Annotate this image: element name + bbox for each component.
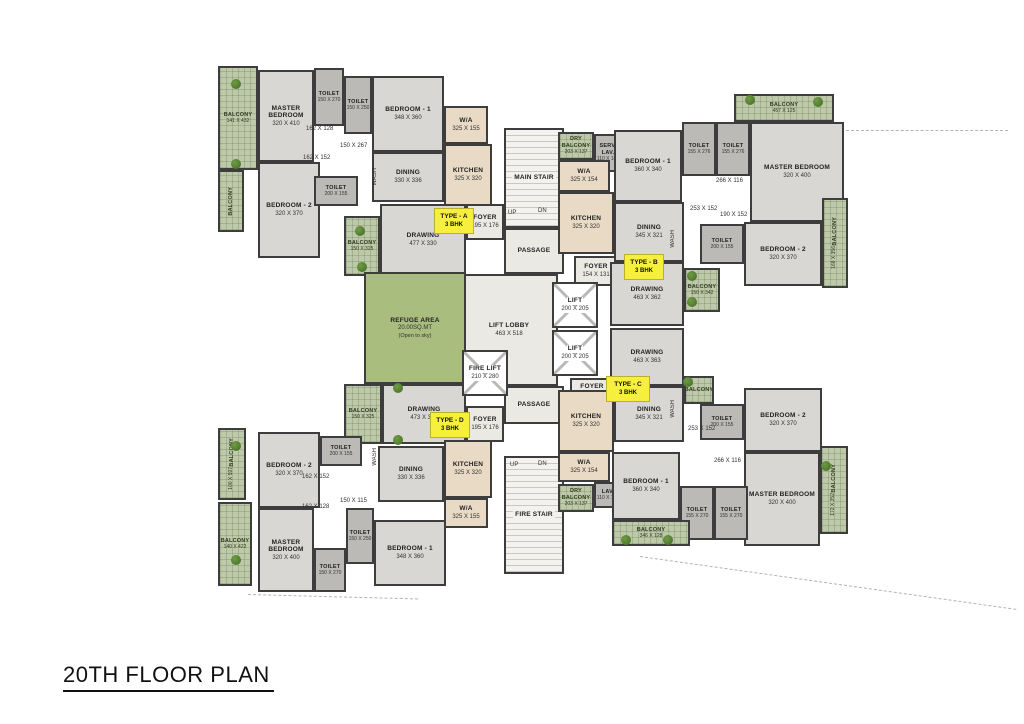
room-dimension-label: 320 X 370	[275, 471, 302, 478]
room-name-label: TOILET	[350, 530, 371, 536]
room-name-label: DRAWING	[631, 349, 664, 356]
room-name-label: BEDROOM - 1	[623, 478, 669, 485]
tree-icon	[745, 95, 755, 105]
dashed-line	[248, 594, 418, 599]
room-b-bedroom-1: BEDROOM - 1360 X 340	[614, 130, 682, 202]
room-dimension-label: 320 X 410	[272, 121, 299, 128]
dimension-label: 162 X 128	[306, 126, 333, 132]
room-dimension-label: 172 X 352	[831, 493, 837, 516]
room-name-label: TOILET	[320, 564, 341, 570]
room-name-label: FOYER	[473, 214, 496, 221]
room-name-label: DRAWING	[631, 286, 664, 293]
room-name-label: PASSAGE	[518, 247, 551, 254]
room-core-passage-bottom: PASSAGE	[504, 386, 564, 424]
room-d-balcony-bottom: BALCONY140 X 422	[218, 502, 252, 586]
dashed-line	[846, 130, 1008, 131]
room-c-bedroom-1: BEDROOM - 1360 X 340	[612, 452, 680, 520]
room-dimension-label: 477 X 330	[409, 241, 436, 248]
plan-title: 20TH FLOOR PLAN	[63, 662, 274, 692]
dimension-label: 190 X 152	[720, 212, 747, 218]
chip-type-a: TYPE - A3 BHK	[434, 208, 474, 234]
room-b-balcony-right: BALCONY168 X 356	[822, 198, 848, 288]
room-name-label: BEDROOM - 2	[266, 462, 312, 469]
dimension-label: WASH	[670, 400, 676, 418]
room-dimension-label: 325 X 154	[570, 468, 597, 475]
dimension-label: 162 X 152	[302, 474, 329, 480]
room-name-label: DINING	[399, 466, 423, 473]
room-dimension-label: 320 X 370	[275, 211, 302, 218]
room-a-kitchen: KITCHEN325 X 320	[444, 144, 492, 206]
room-dimension-label: 463 X 362	[633, 295, 660, 302]
floor-plan: 20TH FLOOR PLAN BALCONY141 X 432BALCONYM…	[0, 0, 1024, 724]
room-name-label: TOILET	[687, 507, 708, 513]
unit-type-label: TYPE - D	[436, 418, 463, 425]
dimension-label: WASH	[372, 448, 378, 466]
room-name-label: FIRE LIFT	[468, 365, 502, 372]
room-name-label: DINING	[637, 224, 661, 231]
room-name-label: TOILET	[326, 185, 347, 191]
tree-icon	[355, 226, 365, 236]
room-d-dining: DINING330 X 336	[378, 446, 444, 502]
room-dimension-label: 330 X 336	[397, 475, 424, 482]
room-d-kitchen: KITCHEN325 X 320	[444, 440, 492, 498]
room-core-fire-stair: FIRE STAIR	[504, 456, 564, 574]
room-d-master-bedroom: MASTER BEDROOM320 X 400	[258, 508, 314, 592]
unit-type-label: TYPE - A	[440, 214, 467, 221]
room-name-label: BEDROOM - 1	[625, 158, 671, 165]
unit-bhk-label: 3 BHK	[445, 222, 463, 228]
room-name-label: BALCONY	[224, 112, 253, 118]
room-name-label: DRY BALCONY	[560, 136, 592, 149]
dimension-label: UP	[508, 210, 516, 216]
room-dimension-label: 155 X 270	[686, 514, 709, 520]
room-name-label: MASTER BEDROOM	[749, 491, 815, 498]
room-name-label: MAIN STAIR	[512, 173, 555, 182]
room-name-label: BALCONY	[688, 284, 717, 290]
unit-bhk-label: 3 BHK	[619, 390, 637, 396]
room-a-bedroom-1: BEDROOM - 1348 X 360	[372, 76, 444, 152]
room-name-label: BALCONY	[685, 387, 714, 393]
room-core-lift-2: LIFT200 X 205	[552, 330, 598, 376]
room-dimension-label: 325 X 320	[572, 422, 599, 429]
room-a-balcony-left: BALCONY	[218, 170, 244, 232]
room-name-label: DRY BALCONY	[560, 488, 592, 501]
room-core-fire-lift: FIRE LIFT210 X 280	[462, 350, 508, 396]
room-dimension-label: 325 X 320	[454, 470, 481, 477]
room-name-label: W/A	[459, 117, 472, 124]
room-dimension-label: 457 X 125	[773, 109, 796, 115]
room-d-toilet-1: TOILET200 X 155	[320, 436, 362, 466]
room-c-toilet-3: TOILET155 X 270	[714, 486, 748, 540]
room-name-label: REFUGE AREA	[390, 317, 439, 324]
room-dimension-label: 360 X 340	[634, 167, 661, 174]
tree-icon	[621, 535, 631, 545]
room-name-label: KITCHEN	[571, 215, 601, 222]
dimension-label: 266 X 116	[714, 458, 741, 464]
room-name-label: BALCONY	[221, 538, 250, 544]
room-a-toilet-3: TOILET200 X 155	[314, 176, 358, 206]
room-name-label: BALCONY	[831, 464, 837, 493]
room-core-lift-1: LIFT200 X 205	[552, 282, 598, 328]
room-note-label: (Open to sky)	[398, 333, 431, 339]
room-name-label: MASTER BEDROOM	[260, 105, 312, 120]
room-name-label: W/A	[459, 505, 472, 512]
room-d-bedroom-1: BEDROOM - 1348 X 360	[374, 520, 446, 586]
room-name-label: BEDROOM - 1	[387, 545, 433, 552]
room-name-label: BEDROOM - 2	[760, 412, 806, 419]
room-dimension-label: 20.00SQ.MT	[398, 325, 432, 332]
room-c-wa: W/A325 X 154	[558, 452, 610, 482]
tree-icon	[231, 441, 241, 451]
dimension-label: DN	[538, 461, 547, 467]
room-c-master-bedroom: MASTER BEDROOM320 X 400	[744, 452, 820, 546]
room-dimension-label: 200 X 155	[330, 452, 353, 458]
room-b-bedroom-2: BEDROOM - 2320 X 370	[744, 222, 822, 286]
room-name-label: KITCHEN	[453, 167, 483, 174]
room-name-label: TOILET	[712, 238, 733, 244]
room-dimension-label: 150 X 250	[349, 537, 372, 543]
room-name-label: MASTER BEDROOM	[764, 164, 830, 171]
room-name-label: PASSAGE	[518, 401, 551, 408]
room-dimension-label: 200 X 205	[560, 354, 589, 361]
room-dimension-label: 346 X 128	[640, 534, 663, 540]
room-name-label: BEDROOM - 2	[266, 202, 312, 209]
room-name-label: MASTER BEDROOM	[260, 539, 312, 554]
tree-icon	[393, 383, 403, 393]
room-dimension-label: 330 X 336	[394, 178, 421, 185]
room-name-label: TOILET	[348, 99, 369, 105]
dimension-label: WASH	[372, 168, 378, 186]
room-dimension-label: 325 X 320	[454, 176, 481, 183]
room-refuge-area: REFUGE AREA20.00SQ.MT(Open to sky)	[364, 272, 466, 384]
room-dimension-label: 348 X 360	[394, 115, 421, 122]
dimension-label: UP	[510, 462, 518, 468]
room-name-label: TOILET	[319, 91, 340, 97]
unit-bhk-label: 3 BHK	[441, 426, 459, 432]
room-dimension-label: 348 X 360	[396, 554, 423, 561]
room-b-dry-balcony: DRY BALCONY203 X 137	[558, 132, 594, 160]
room-name-label: TOILET	[331, 445, 352, 451]
tree-icon	[687, 297, 697, 307]
room-b-toilet-1: TOILET155 X 276	[682, 122, 716, 176]
room-dimension-label: 154 X 131	[582, 272, 609, 279]
room-dimension-label: 325 X 154	[570, 177, 597, 184]
dimension-label: DN	[538, 208, 547, 214]
room-d-toilet-2: TOILET150 X 250	[346, 508, 374, 564]
room-d-balcony-top: BALCONY150 X 325	[344, 384, 382, 444]
room-dimension-label: 325 X 320	[572, 224, 599, 231]
tree-icon	[231, 79, 241, 89]
unit-type-label: TYPE - C	[614, 382, 641, 389]
room-dimension-label: 200 X 155	[711, 245, 734, 251]
dimension-label: 266 X 116	[716, 178, 743, 184]
room-dimension-label: 325 X 155	[452, 514, 479, 521]
room-name-label: BEDROOM - 2	[760, 246, 806, 253]
room-name-label: BALCONY	[349, 408, 378, 414]
room-dimension-label: 155 X 276	[688, 150, 711, 156]
room-dimension-label: 140 X 422	[224, 545, 247, 551]
dashed-line	[640, 556, 1016, 610]
dimension-label: WASH	[670, 230, 676, 248]
room-dimension-label: 463 X 518	[495, 331, 522, 338]
room-b-toilet-3: TOILET200 X 155	[700, 224, 744, 264]
chip-type-d: TYPE - D3 BHK	[430, 412, 470, 438]
room-dimension-label: 141 X 432	[227, 119, 250, 125]
unit-type-label: TYPE - B	[630, 260, 657, 267]
tree-icon	[821, 461, 831, 471]
room-name-label: TOILET	[723, 143, 744, 149]
room-d-wa: W/A325 X 155	[444, 498, 488, 528]
room-a-dining: DINING330 X 336	[372, 152, 444, 202]
tree-icon	[687, 271, 697, 281]
room-a-master-bedroom: MASTER BEDROOM320 X 410	[258, 70, 314, 162]
tree-icon	[357, 262, 367, 272]
room-dimension-label: 463 X 363	[633, 358, 660, 365]
room-dimension-label: 320 X 400	[272, 555, 299, 562]
room-core-passage-top: PASSAGE	[504, 228, 564, 274]
chip-type-c: TYPE - C3 BHK	[606, 376, 650, 402]
room-name-label: DINING	[396, 169, 420, 176]
room-d-bedroom-2: BEDROOM - 2320 X 370	[258, 432, 320, 508]
room-name-label: KITCHEN	[453, 461, 483, 468]
tree-icon	[231, 555, 241, 565]
room-dimension-label: 320 X 370	[769, 421, 796, 428]
room-c-balcony-right: BALCONY172 X 352	[820, 446, 848, 534]
room-name-label: W/A	[577, 168, 590, 175]
tree-icon	[663, 535, 673, 545]
room-name-label: FIRE STAIR	[513, 510, 555, 519]
room-dimension-label: 320 X 370	[769, 255, 796, 262]
room-dimension-label: 150 X 325	[351, 247, 374, 253]
room-b-kitchen: KITCHEN325 X 320	[558, 192, 614, 254]
room-c-bedroom-2: BEDROOM - 2320 X 370	[744, 388, 822, 452]
room-name-label: TOILET	[712, 416, 733, 422]
tree-icon	[231, 159, 241, 169]
room-name-label: LIFT	[567, 345, 584, 352]
unit-bhk-label: 3 BHK	[635, 268, 653, 274]
room-d-toilet-3: TOILET150 X 270	[314, 548, 346, 592]
room-dimension-label: 203 X 137	[565, 150, 588, 156]
room-dimension-label: 200 X 205	[560, 306, 589, 313]
dimension-label: 253 X 152	[688, 426, 715, 432]
room-a-toilet-1: TOILET150 X 270	[314, 68, 344, 126]
room-dimension-label: 320 X 400	[768, 500, 795, 507]
room-dimension-label: 150 X 270	[319, 571, 342, 577]
room-c-toilet-1: TOILET200 X 155	[700, 404, 744, 440]
room-dimension-label: 360 X 340	[632, 487, 659, 494]
room-name-label: LIFT LOBBY	[489, 322, 529, 329]
room-d-foyer: FOYER195 X 176	[466, 406, 504, 442]
room-dimension-label: 150 X 342	[691, 291, 714, 297]
room-dimension-label: 150 X 270	[318, 98, 341, 104]
room-a-wa: W/A325 X 155	[444, 106, 488, 144]
chip-type-b: TYPE - B3 BHK	[624, 254, 664, 280]
room-a-bedroom-2: BEDROOM - 2320 X 370	[258, 162, 320, 258]
room-name-label: BEDROOM - 1	[385, 106, 431, 113]
room-dimension-label: 200 X 155	[325, 192, 348, 198]
tree-icon	[813, 97, 823, 107]
room-name-label: BALCONY	[770, 102, 799, 108]
room-dimension-label: 345 X 321	[635, 415, 662, 422]
tree-icon	[393, 435, 403, 445]
room-name-label: BALCONY	[832, 217, 838, 246]
room-dimension-label: 325 X 155	[452, 126, 479, 133]
room-name-label: FOYER	[473, 416, 496, 423]
room-name-label: DINING	[637, 406, 661, 413]
dimension-label: 162 X 152	[303, 155, 330, 161]
room-b-wa: W/A325 X 154	[558, 160, 610, 192]
dimension-label: 150 X 115	[340, 498, 367, 504]
room-dimension-label: 155 X 276	[722, 150, 745, 156]
room-dimension-label: 203 X 137	[565, 502, 588, 508]
room-d-balcony-left: BALCONY100 X 597	[218, 428, 246, 500]
room-dimension-label: 150 X 250	[347, 106, 370, 112]
room-dimension-label: 320 X 400	[783, 173, 810, 180]
room-name-label: FOYER	[584, 263, 607, 270]
room-name-label: LIFT	[567, 297, 584, 304]
room-name-label: W/A	[577, 459, 590, 466]
room-dimension-label: 345 X 321	[635, 233, 662, 240]
room-dimension-label: 100 X 597	[229, 467, 235, 490]
room-name-label: TOILET	[689, 143, 710, 149]
room-name-label: KITCHEN	[571, 413, 601, 420]
room-name-label: BALCONY	[228, 187, 234, 216]
room-c-dry-balcony: DRY BALCONY203 X 137	[558, 484, 594, 512]
tree-icon	[683, 377, 693, 387]
room-name-label: BALCONY	[637, 527, 666, 533]
room-dimension-label: 195 X 176	[471, 223, 498, 230]
dimension-label: 150 X 267	[340, 143, 367, 149]
room-dimension-label: 150 X 325	[352, 415, 375, 421]
room-dimension-label: 168 X 356	[832, 246, 838, 269]
room-a-toilet-2: TOILET150 X 250	[344, 76, 372, 134]
dimension-label: 162 X 128	[302, 504, 329, 510]
room-name-label: BALCONY	[348, 240, 377, 246]
dimension-label: 253 X 152	[690, 206, 717, 212]
room-dimension-label: 155 X 270	[720, 514, 743, 520]
room-b-toilet-2: TOILET155 X 276	[716, 122, 750, 176]
room-dimension-label: 195 X 176	[471, 425, 498, 432]
room-name-label: TOILET	[721, 507, 742, 513]
room-dimension-label: 210 X 280	[470, 374, 499, 381]
